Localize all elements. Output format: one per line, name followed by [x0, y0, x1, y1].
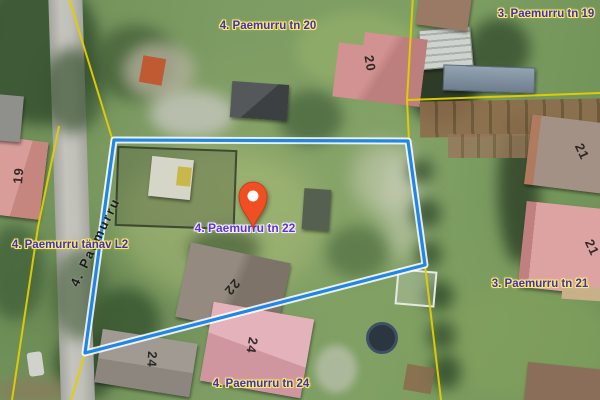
shrub-row [416, 240, 442, 269]
garden-bed-small [403, 364, 435, 394]
shed-roof [139, 55, 166, 86]
house-number-19: 19 [10, 167, 26, 185]
parked-car [26, 351, 44, 377]
shed-yellow-panel [176, 166, 192, 186]
parcel-label-tn24: 4. Paemurru tn 24 [213, 378, 310, 390]
shed-dark [230, 81, 289, 121]
tree-canopy [326, 226, 388, 278]
clutter-light [315, 345, 357, 393]
shrub-row [408, 158, 434, 184]
location-pin[interactable] [236, 180, 270, 230]
tree-over-road [42, 48, 104, 133]
pin-hole [248, 191, 259, 202]
building-top-right-corner [416, 0, 473, 31]
shed-green [302, 188, 332, 231]
house-number-20: 20 [361, 54, 379, 73]
building-top-left-corner [0, 94, 24, 143]
parcel-label-tn20: 4. Paemurru tn 20 [220, 20, 317, 32]
greenhouse-frame [395, 268, 438, 307]
shrub-row [430, 354, 461, 390]
building-bottom-right [524, 362, 600, 400]
trampoline [366, 322, 398, 354]
pin-body [239, 182, 267, 228]
shrub-row [427, 320, 456, 351]
parcel-label-tn21: 3. Paemurru tn 21 [492, 278, 589, 290]
paved-area [150, 90, 235, 138]
house-number-24b: 24 [144, 351, 160, 368]
aerial-map[interactable]: 20 19 21 21 22 24 24 4. Paemurru tn 20 3… [0, 0, 600, 400]
house-number-24a: 24 [243, 336, 261, 355]
greenhouse-long [443, 64, 536, 93]
parcel-label-tanav-l2: 4. Paemurru tänav L2 [12, 239, 128, 251]
parcel-label-tn19: 3. Paemurru tn 19 [498, 8, 595, 20]
shrub-row [412, 198, 441, 229]
